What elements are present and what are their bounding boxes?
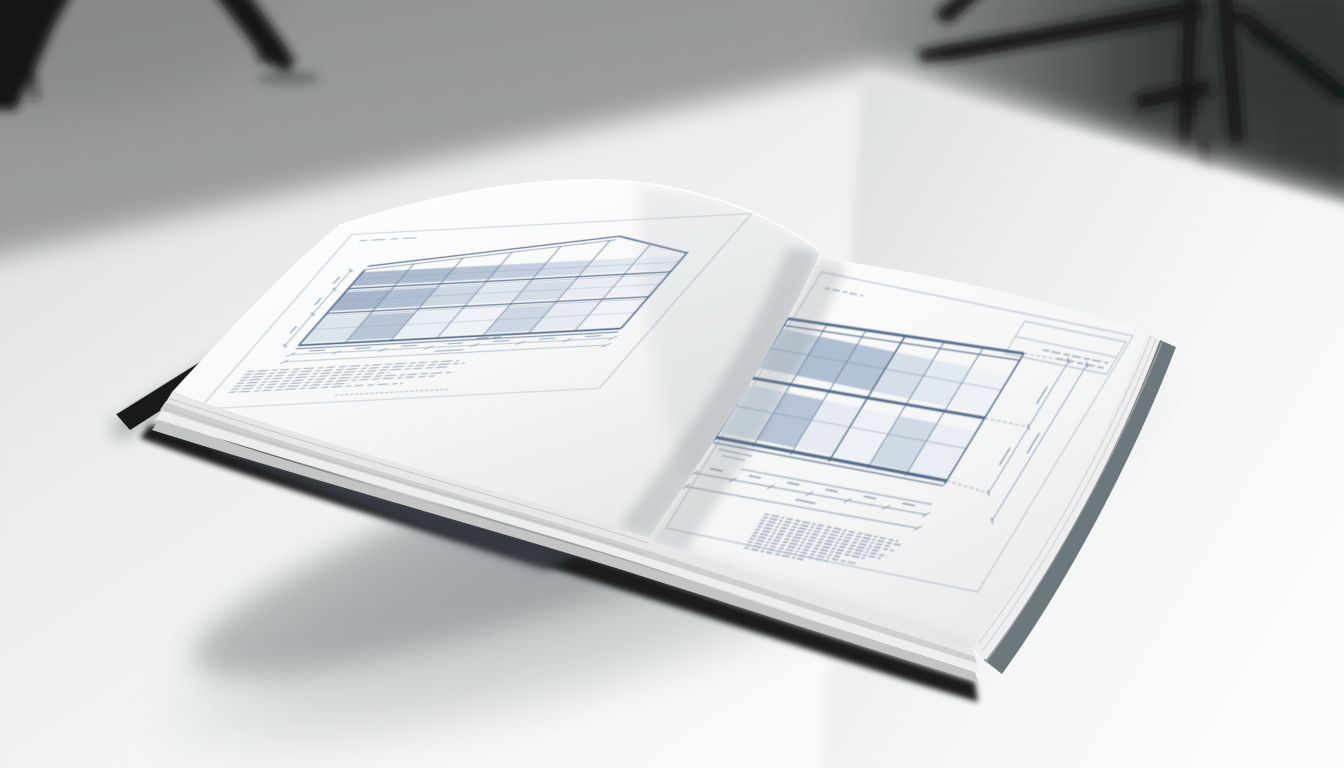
photo-canvas [0,0,1344,768]
tripod-left-foot-shadow [256,71,320,85]
studio-photo-scene [0,0,1344,768]
